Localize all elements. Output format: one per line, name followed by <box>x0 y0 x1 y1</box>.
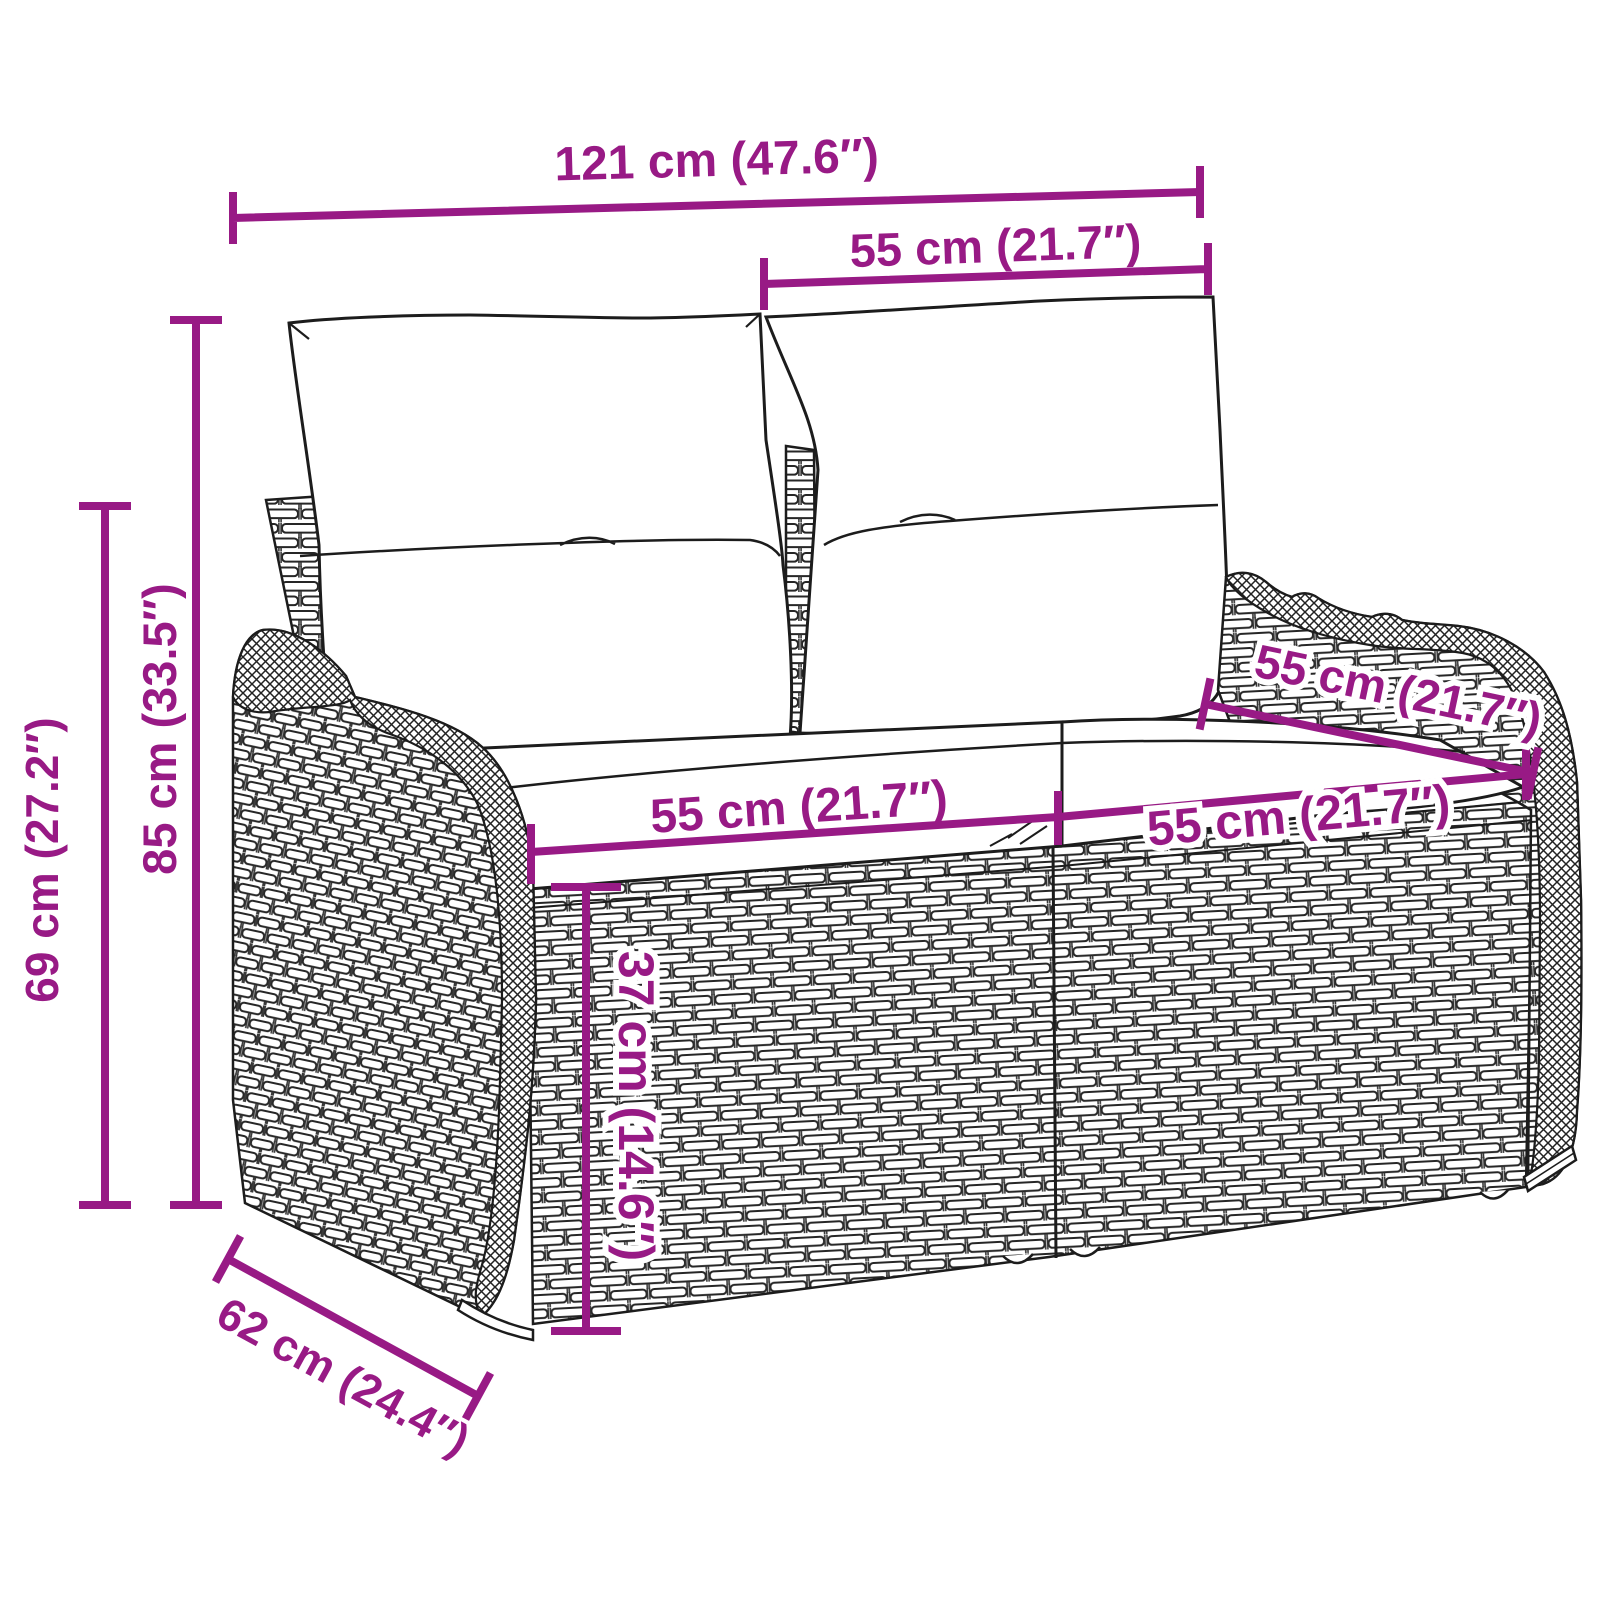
svg-text:37 cm (14.6″): 37 cm (14.6″) <box>608 951 664 1261</box>
svg-text:55 cm (21.7″): 55 cm (21.7″) <box>849 214 1142 277</box>
svg-text:85 cm (33.5″): 85 cm (33.5″) <box>133 583 186 875</box>
svg-text:121 cm (47.6″): 121 cm (47.6″) <box>554 129 880 191</box>
svg-text:69 cm (27.2″): 69 cm (27.2″) <box>16 717 68 1002</box>
